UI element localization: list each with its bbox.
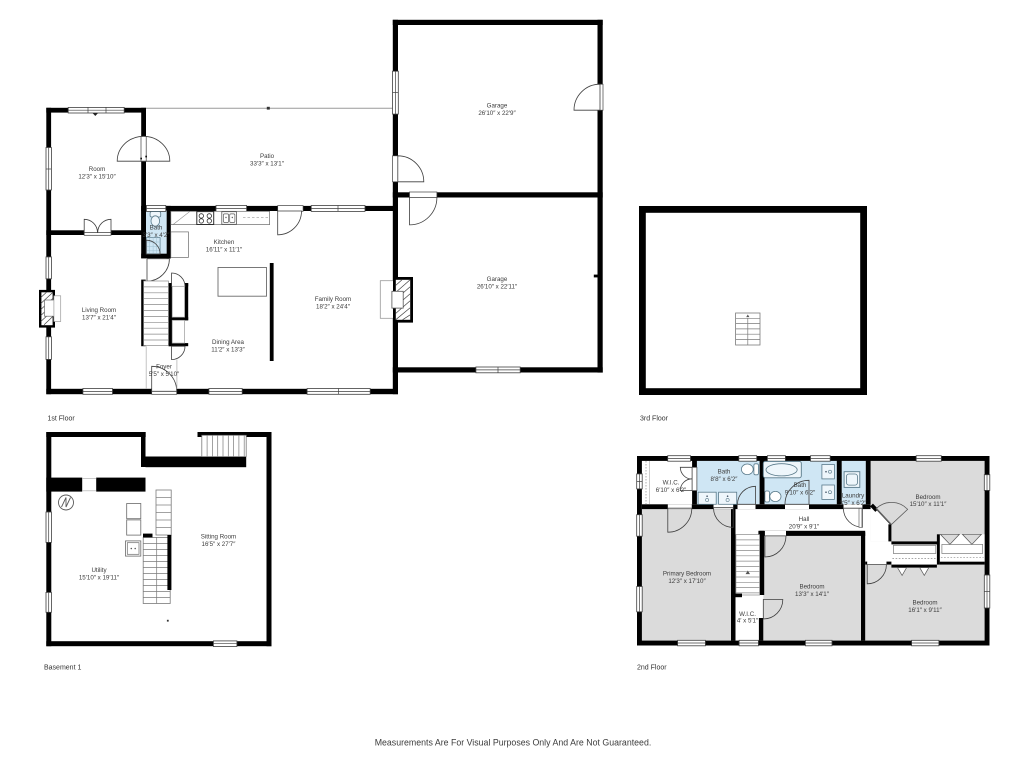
svg-text:3′5″ x 6′2″: 3′5″ x 6′2″ bbox=[840, 500, 868, 507]
svg-text:9′10″ x 6′2″: 9′10″ x 6′2″ bbox=[785, 490, 816, 497]
svg-text:8′8″ x 6′2″: 8′8″ x 6′2″ bbox=[711, 476, 739, 483]
svg-text:Living Room: Living Room bbox=[82, 307, 116, 314]
svg-text:26′10″ x 22′11″: 26′10″ x 22′11″ bbox=[477, 284, 518, 291]
svg-text:Measurements Are For Visual Pu: Measurements Are For Visual Purposes Onl… bbox=[375, 738, 652, 748]
svg-text:Bath: Bath bbox=[150, 225, 163, 232]
svg-text:33′3″ x 13′1″: 33′3″ x 13′1″ bbox=[250, 161, 285, 168]
svg-text:11′2″ x 13′3″: 11′2″ x 13′3″ bbox=[211, 347, 245, 354]
svg-text:Primary Bedroom: Primary Bedroom bbox=[663, 571, 711, 578]
svg-text:20′9″ x 9′1″: 20′9″ x 9′1″ bbox=[789, 524, 820, 531]
svg-text:Patio: Patio bbox=[260, 153, 275, 160]
svg-text:Basement 1: Basement 1 bbox=[44, 664, 81, 671]
svg-text:Family Room: Family Room bbox=[315, 296, 351, 303]
svg-text:13′3″ x 14′1″: 13′3″ x 14′1″ bbox=[795, 591, 830, 598]
svg-text:1st Floor: 1st Floor bbox=[48, 415, 76, 422]
svg-text:Sitting Room: Sitting Room bbox=[201, 534, 236, 541]
svg-text:Garage: Garage bbox=[487, 102, 508, 109]
svg-text:Dining Area: Dining Area bbox=[212, 339, 245, 346]
svg-text:6′10″ x 6′2″: 6′10″ x 6′2″ bbox=[656, 487, 687, 494]
svg-text:16′1″ x 9′11″: 16′1″ x 9′11″ bbox=[908, 607, 942, 614]
svg-text:16′5″ x 27′7″: 16′5″ x 27′7″ bbox=[202, 541, 237, 548]
svg-text:Bath: Bath bbox=[794, 482, 807, 489]
svg-text:12′3″ x 15′10″: 12′3″ x 15′10″ bbox=[78, 174, 116, 181]
svg-text:15′10″ x 19′11″: 15′10″ x 19′11″ bbox=[79, 575, 120, 582]
svg-text:18′2″ x 24′4″: 18′2″ x 24′4″ bbox=[316, 304, 351, 311]
svg-text:16′11″ x 11′1″: 16′11″ x 11′1″ bbox=[206, 247, 243, 254]
svg-text:Hall: Hall bbox=[799, 516, 810, 523]
svg-text:Bedroom: Bedroom bbox=[799, 584, 824, 591]
svg-text:Room: Room bbox=[89, 166, 106, 173]
svg-text:Bedroom: Bedroom bbox=[915, 494, 940, 501]
svg-text:Utility: Utility bbox=[91, 567, 107, 574]
svg-text:4′ x 5′1″: 4′ x 5′1″ bbox=[737, 618, 759, 625]
svg-text:Laundry: Laundry bbox=[842, 493, 865, 500]
svg-text:Foyer: Foyer bbox=[156, 364, 172, 371]
svg-text:W.I.C.: W.I.C. bbox=[663, 480, 680, 487]
svg-text:26′10″ x 22′9″: 26′10″ x 22′9″ bbox=[478, 110, 516, 117]
svg-text:15′10″ x 11′1″: 15′10″ x 11′1″ bbox=[910, 501, 948, 508]
svg-text:13′7″ x 21′4″: 13′7″ x 21′4″ bbox=[82, 315, 117, 322]
svg-text:Bath: Bath bbox=[718, 469, 731, 476]
svg-text:2nd Floor: 2nd Floor bbox=[637, 664, 667, 671]
svg-text:Kitchen: Kitchen bbox=[214, 239, 235, 246]
svg-text:5′5″ x 5′10″: 5′5″ x 5′10″ bbox=[149, 371, 180, 378]
svg-text:Bedroom: Bedroom bbox=[912, 600, 937, 607]
svg-text:3rd Floor: 3rd Floor bbox=[640, 415, 669, 422]
svg-text:Garage: Garage bbox=[487, 276, 508, 283]
svg-text:12′3″ x 17′10″: 12′3″ x 17′10″ bbox=[668, 578, 706, 585]
svg-text:3′3″ x 4′2″: 3′3″ x 4′2″ bbox=[143, 232, 171, 239]
